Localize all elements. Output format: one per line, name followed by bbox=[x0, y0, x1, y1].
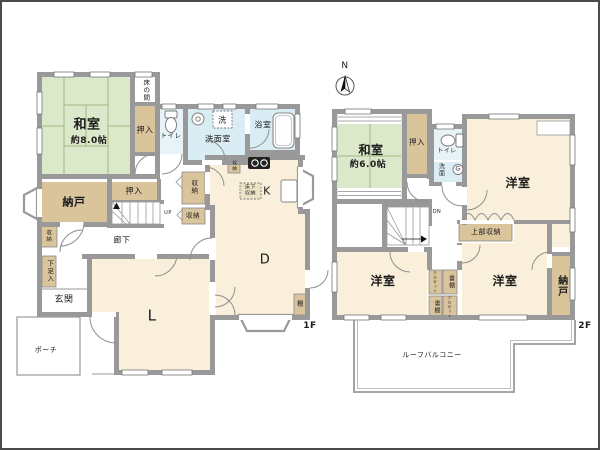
bathtub-icon bbox=[273, 113, 294, 148]
room-nando-1f bbox=[42, 182, 107, 222]
washer-pan-box bbox=[213, 111, 232, 128]
toilet-icon-2f bbox=[441, 134, 463, 147]
floor2-rooms bbox=[337, 114, 570, 318]
room-yoshitsu-sw bbox=[337, 252, 427, 315]
bay-window-nando bbox=[24, 188, 37, 219]
room-oshiire-2f bbox=[407, 114, 427, 174]
closet-hall-lower bbox=[182, 208, 205, 224]
gas-meter-icon bbox=[453, 165, 463, 175]
stairs-up-1f bbox=[112, 202, 160, 224]
closet-box-ne bbox=[429, 270, 442, 294]
bookshelf-box-ne bbox=[443, 270, 457, 294]
entrance-door-arc bbox=[90, 317, 116, 343]
stairs-down-2f bbox=[387, 207, 429, 245]
floorplan-image: 和室約8.0帖床の間押入トイレ洗面室洗浴室納戸押入収納収納廊下収納下足入玄関ポー… bbox=[0, 0, 600, 450]
room-nando-2f bbox=[552, 256, 570, 315]
underfloor-storage-box bbox=[240, 183, 261, 199]
wall-closet-ne bbox=[537, 121, 570, 135]
closet-hall-upper bbox=[182, 172, 205, 204]
stove-icon bbox=[248, 157, 270, 169]
room-oshiire-east-1f bbox=[135, 106, 155, 152]
shoe-cabinet bbox=[42, 256, 56, 287]
closet-box-se bbox=[443, 296, 457, 318]
bookshelf-box-sw bbox=[429, 296, 442, 318]
refrigerator-icon bbox=[281, 180, 297, 202]
roof-balcony-outline bbox=[354, 320, 575, 392]
washing-machine-icon bbox=[192, 113, 204, 125]
porch-outline bbox=[17, 317, 80, 375]
toilet-icon-1f bbox=[165, 111, 177, 133]
compass-icon bbox=[336, 76, 354, 96]
room-oshiire-south-1f bbox=[112, 182, 157, 200]
floorplan-drawing bbox=[2, 2, 600, 450]
